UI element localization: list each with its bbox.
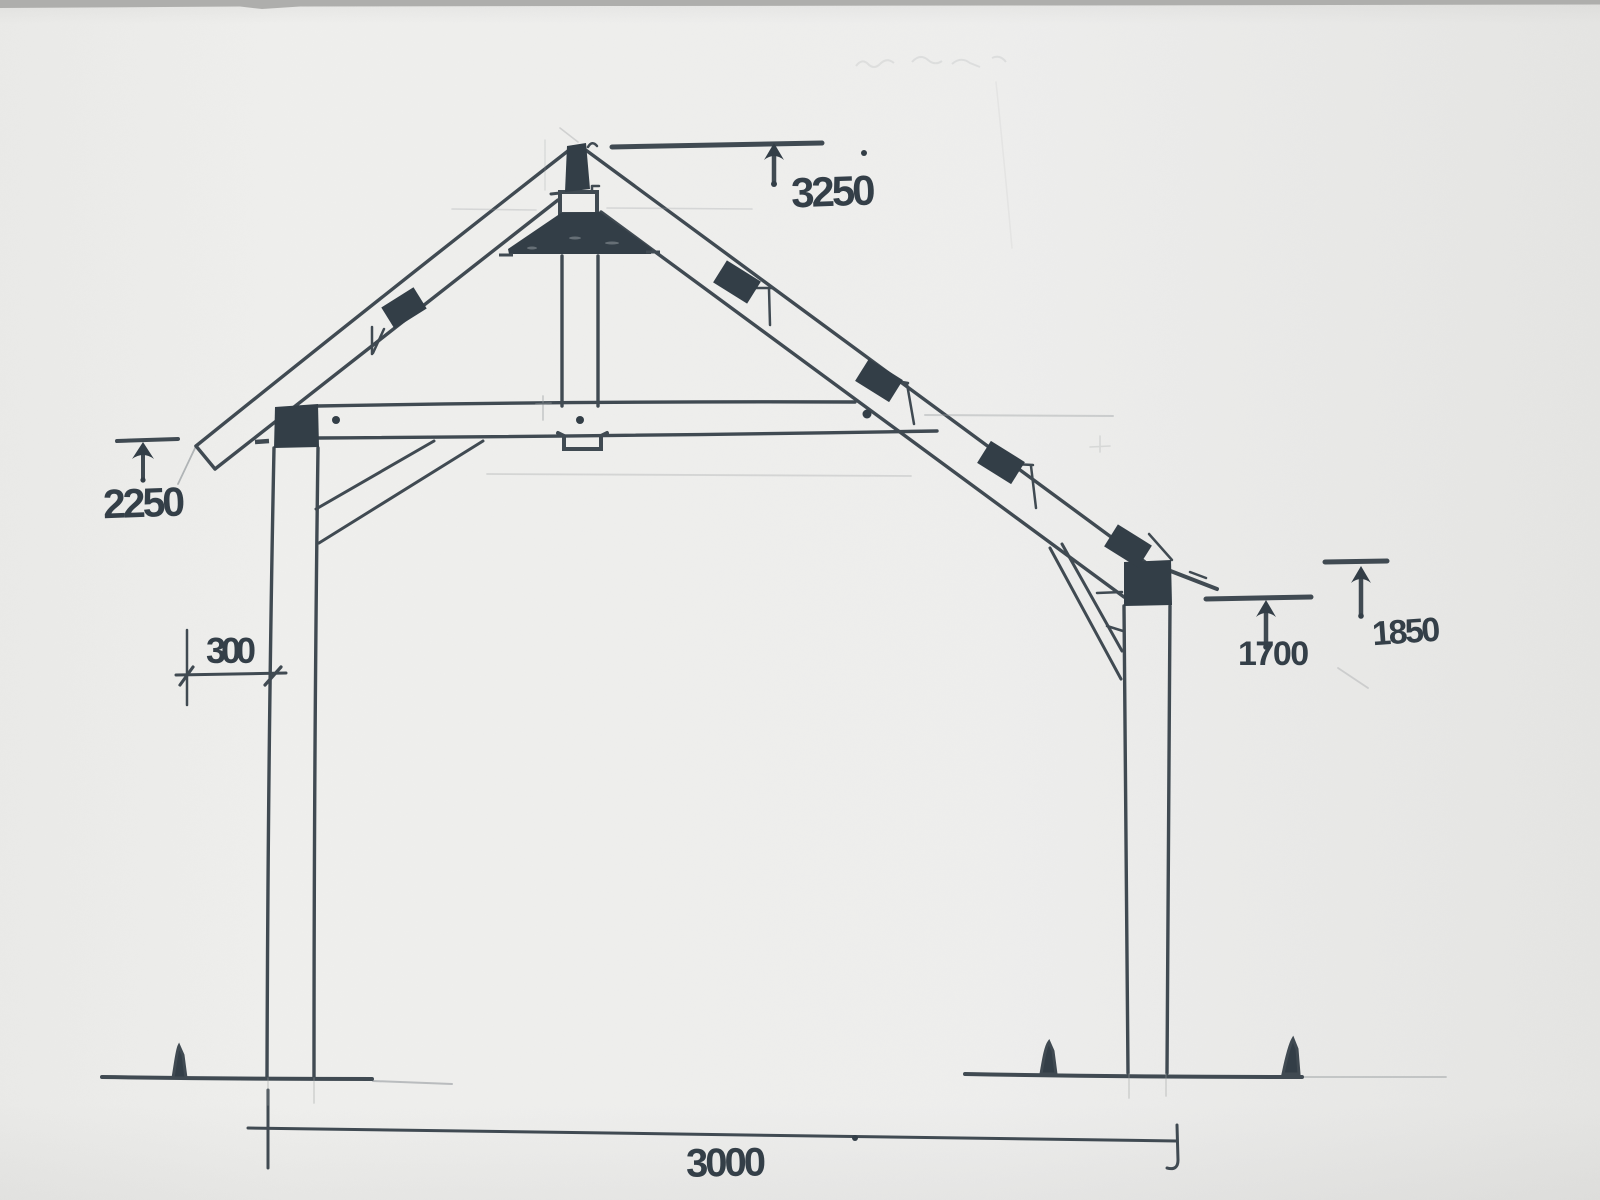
svg-text:1700: 1700 bbox=[1238, 635, 1308, 673]
svg-text:1850: 1850 bbox=[1371, 611, 1441, 654]
svg-text:2250: 2250 bbox=[102, 478, 185, 527]
svg-text:300: 300 bbox=[206, 630, 255, 671]
svg-text:3000: 3000 bbox=[686, 1140, 765, 1185]
svg-text:3250: 3250 bbox=[790, 166, 875, 216]
